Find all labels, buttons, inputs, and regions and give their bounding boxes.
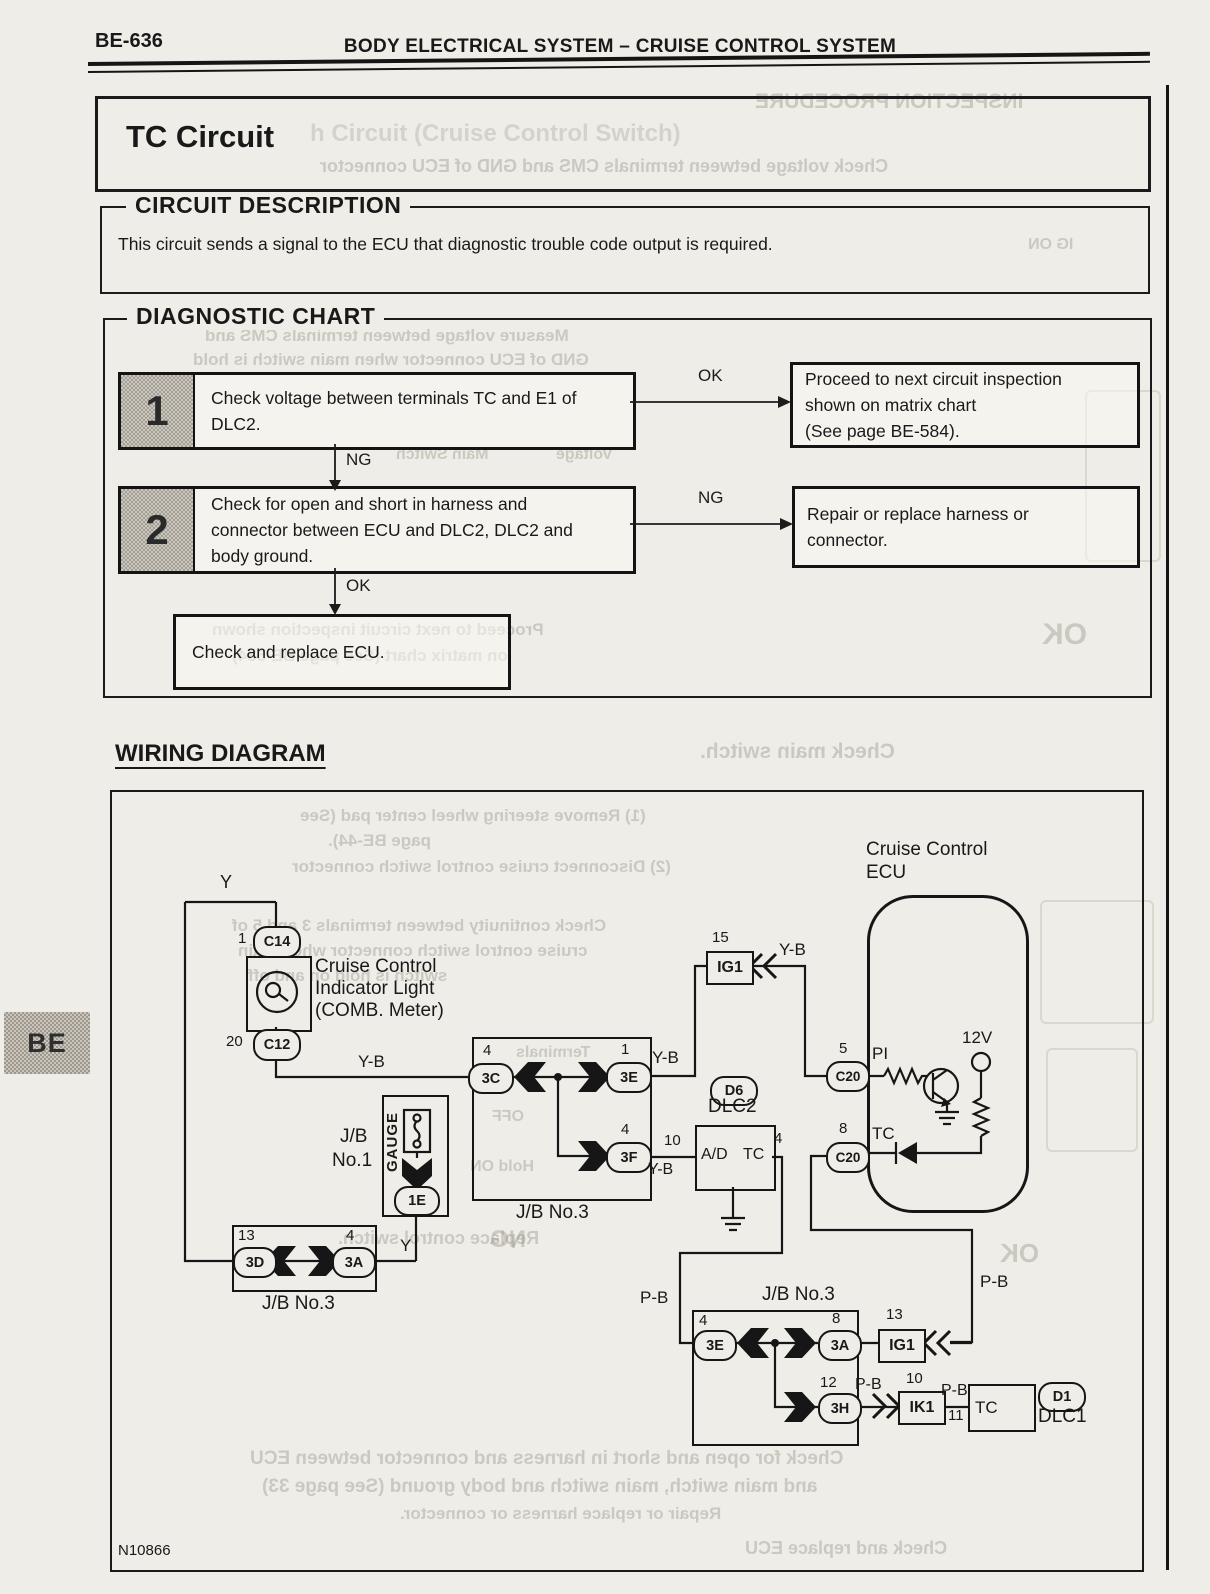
junction-block-3-bl-label: J/B No.3 bbox=[262, 1293, 335, 1315]
pin-10-ik1: 10 bbox=[906, 1370, 923, 1387]
indicator-light-label: Cruise Control Indicator Light (COMB. Me… bbox=[315, 956, 444, 1022]
pin-8-3a-bot: 8 bbox=[832, 1310, 840, 1327]
pin-4-3e-bot: 4 bbox=[699, 1312, 707, 1329]
junction-block-1-label-1: J/B bbox=[340, 1126, 367, 1148]
connector-c12: C12 bbox=[253, 1029, 301, 1061]
connector-1e: 1E bbox=[394, 1186, 440, 1216]
connector-3h: 3H bbox=[818, 1393, 862, 1424]
connector-c20-5: C20 bbox=[826, 1061, 870, 1092]
wiring-svg bbox=[0, 0, 1210, 1594]
wire-label-yb-1: Y-B bbox=[358, 1052, 385, 1072]
dlc2-tc-terminal: TC bbox=[743, 1146, 764, 1164]
wire-label-pb-out: P-B bbox=[941, 1382, 968, 1400]
label-12v: 12V bbox=[962, 1028, 992, 1048]
fuse-ik1: IK1 bbox=[898, 1391, 946, 1425]
junction-block-1-label-2: No.1 bbox=[332, 1150, 372, 1172]
pin-1-3e: 1 bbox=[621, 1041, 629, 1058]
ecu-label: Cruise Control ECU bbox=[866, 838, 987, 884]
dlc1-label: DLC1 bbox=[1038, 1406, 1087, 1428]
manual-page: { "page": { "code": "BE-636", "header": … bbox=[0, 0, 1210, 1594]
connector-3e-bot: 3E bbox=[693, 1330, 737, 1361]
pin-13-ig1: 13 bbox=[886, 1306, 903, 1323]
pin-4-3a-bl: 4 bbox=[346, 1227, 354, 1244]
indicator-light-label-3: (COMB. Meter) bbox=[315, 1000, 444, 1022]
wire-label-pb-left: P-B bbox=[640, 1288, 668, 1308]
pin-13-3d: 13 bbox=[238, 1227, 255, 1244]
connector-3f: 3F bbox=[606, 1142, 652, 1173]
pin-10-dlc2: 10 bbox=[664, 1132, 681, 1149]
junction-block-3-mid-label: J/B No.3 bbox=[516, 1202, 589, 1224]
connector-c20-8: C20 bbox=[826, 1142, 870, 1173]
indicator-light-label-2: Indicator Light bbox=[315, 978, 444, 1000]
ecu-box bbox=[867, 895, 1029, 1213]
terminal-label-pi: PI bbox=[872, 1044, 888, 1064]
wire-label-y-mid: Y bbox=[400, 1236, 411, 1256]
fuse-ig1-top: IG1 bbox=[706, 951, 754, 985]
indicator-light-box bbox=[246, 956, 312, 1032]
pin-8: 8 bbox=[839, 1120, 847, 1137]
ecu-label-2: ECU bbox=[866, 861, 987, 884]
wire-label-yb-4: Y-B bbox=[648, 1161, 673, 1179]
pin-12-3h: 12 bbox=[820, 1374, 837, 1391]
pin-4-3c: 4 bbox=[483, 1042, 491, 1059]
junction-block-3-bot-label: J/B No.3 bbox=[762, 1284, 835, 1306]
wire-label-pb-right: P-B bbox=[980, 1272, 1008, 1292]
terminal-label-tc-ecu: TC bbox=[872, 1124, 895, 1144]
pin-1: 1 bbox=[238, 930, 246, 947]
connector-3a-bot: 3A bbox=[818, 1330, 862, 1361]
dlc1-box: TC bbox=[968, 1384, 1036, 1432]
dlc1-tc-terminal: TC bbox=[970, 1398, 998, 1418]
indicator-light-label-1: Cruise Control bbox=[315, 956, 444, 978]
ecu-label-1: Cruise Control bbox=[866, 838, 987, 861]
wire-label-yb-3: Y-B bbox=[779, 940, 806, 960]
connector-3e: 3E bbox=[606, 1062, 652, 1093]
pin-5: 5 bbox=[839, 1040, 847, 1057]
wire-label-yb-2: Y-B bbox=[652, 1048, 679, 1068]
connector-3d: 3D bbox=[233, 1247, 277, 1278]
dlc2-ad-terminal: A/D bbox=[701, 1146, 728, 1164]
fuse-ig1-bottom: IG1 bbox=[878, 1329, 926, 1363]
wire-label-pb-mid: P-B bbox=[855, 1376, 882, 1394]
pin-11: 11 bbox=[948, 1407, 964, 1424]
connector-c14: C14 bbox=[253, 926, 301, 958]
pin-20: 20 bbox=[226, 1033, 243, 1050]
connector-3a-bl: 3A bbox=[332, 1247, 376, 1278]
dlc2-label: DLC2 bbox=[708, 1096, 757, 1118]
wire-label-y-top: Y bbox=[220, 872, 232, 893]
connector-3c: 3C bbox=[468, 1063, 514, 1094]
pin-4-3f: 4 bbox=[621, 1121, 629, 1138]
pin-15: 15 bbox=[712, 929, 729, 946]
pin-4-dlc2: 4 bbox=[774, 1130, 782, 1147]
gauge-fuse-label: GAUGE bbox=[384, 1100, 401, 1172]
